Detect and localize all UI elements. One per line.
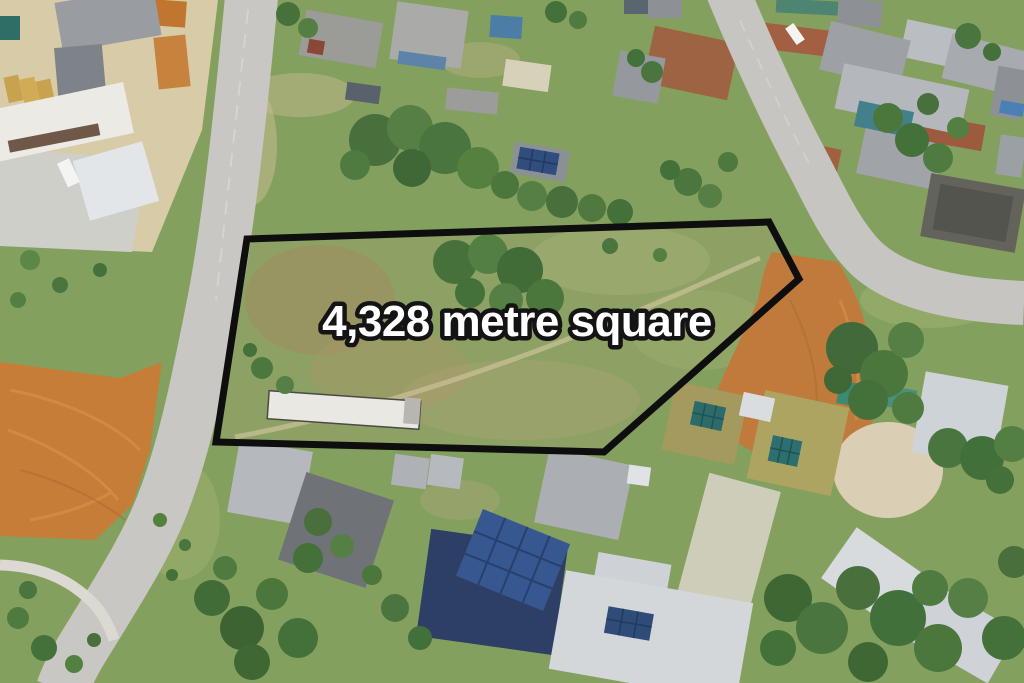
aerial-photo-canvas: 4,328 metre square: [0, 0, 1024, 683]
area-label: 4,328 metre square: [322, 297, 712, 346]
shed-roof: [391, 454, 430, 490]
shed-roof-blue: [489, 15, 522, 39]
house-wall: [307, 39, 325, 56]
shed-roof: [427, 454, 464, 489]
house-roof: [837, 0, 883, 28]
house-roof: [648, 0, 682, 18]
shed-roof: [627, 465, 651, 487]
dirt-patch: [153, 34, 190, 89]
shipping-container: [0, 16, 20, 40]
truck-cab: [403, 397, 421, 424]
aerial-photo: 4,328 metre square: [0, 0, 1024, 683]
dry-grass-patch: [400, 360, 640, 440]
